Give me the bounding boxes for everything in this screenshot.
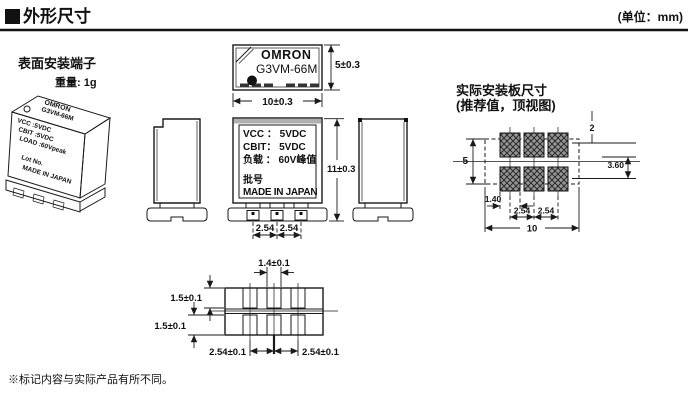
- top-view-brand: OMRON: [261, 48, 311, 62]
- dim-label-254-right: 2.54: [280, 223, 299, 234]
- dim-pin-width: 1.4±0.1: [254, 258, 294, 287]
- dim-11: 11±0.3: [324, 119, 355, 221]
- unit-label: (单位：mm): [618, 9, 683, 24]
- header: 外形尺寸 (单位：mm): [0, 6, 688, 30]
- pcb-subtitle: (推荐值，顶视图): [456, 98, 556, 113]
- mount-type-label: 表面安装端子: [17, 56, 96, 71]
- isometric-view: OMRON G3VM-66M VCC :5VDC CBIT :5VDC LOAD…: [6, 96, 110, 212]
- dim-label-15-bottom: 1.5±0.1: [154, 321, 186, 332]
- heading-square-icon: [5, 9, 20, 24]
- pcb-layout: 实际安装板尺寸 (推荐值，顶视图) 5 10: [453, 83, 640, 235]
- pcb-title: 实际安装板尺寸: [456, 83, 547, 98]
- side-view-right: [353, 118, 413, 221]
- dim-label-10: 10±0.3: [262, 97, 293, 108]
- pcb-dim-row-gap: 3.60: [572, 143, 636, 179]
- dim-label-5: 5±0.3: [335, 60, 360, 71]
- top-view: OMRON G3VM-66M 5±0.3 10±0.3: [233, 45, 360, 108]
- pcb-dim-pad-height: 2: [589, 111, 594, 143]
- page-title: 外形尺寸: [23, 6, 91, 26]
- dim-front-pitch: 2.54 2.54: [253, 222, 301, 239]
- dim-label-254-left: 2.54: [256, 223, 275, 234]
- front-spec2: CBIT： 5VDC: [243, 142, 306, 153]
- dim-label-pcb-254-left: 2.54: [514, 206, 531, 216]
- front-lot-label: 批号: [243, 173, 263, 186]
- datasheet-dimensions-page: 外形尺寸 (单位：mm) 表面安装端子 重量: 1g OMRON G3VM-66…: [0, 0, 688, 417]
- dim-label-360: 3.60: [607, 160, 624, 170]
- pin1-dot-icon: [247, 76, 257, 86]
- dim-label-254-bottom-right: 2.54±0.1: [302, 347, 340, 358]
- left-captions: 表面安装端子 重量: 1g: [17, 56, 97, 89]
- dim-pin-top: 1.5±0.1: [170, 275, 224, 321]
- dim-label-5mm: 5: [462, 156, 468, 167]
- front-spec3: 负载 ： 60V峰值: [243, 153, 316, 166]
- dim-5: 5±0.3: [324, 45, 360, 90]
- front-origin: MADE IN JAPAN: [243, 187, 317, 198]
- weight-label: 重量: 1g: [55, 75, 97, 89]
- dim-label-14: 1.4±0.1: [258, 258, 290, 269]
- pin1-marker-icon: [24, 106, 30, 112]
- side-view-left: [147, 119, 207, 221]
- top-view-model: G3VM-66M: [256, 62, 317, 76]
- footnote: ※标记内容与实际产品有所不同。: [8, 372, 173, 386]
- bottom-view: 1.4±0.1 1.5±0.1 1.5±0.1 2.54±0.1 2.54±0.…: [154, 258, 339, 358]
- dim-label-10mm: 10: [527, 224, 538, 235]
- front-spec1: VCC ： 5VDC: [243, 129, 306, 140]
- dim-label-pcb-254-right: 2.54: [538, 206, 555, 216]
- dim-label-11: 11±0.3: [327, 164, 355, 175]
- front-view: VCC ： 5VDC CBIT： 5VDC 负载 ： 60V峰值 批号 MADE…: [228, 118, 355, 239]
- dim-pin-bottom: 1.5±0.1: [154, 302, 224, 348]
- dim-10: 10±0.3: [233, 93, 322, 108]
- dim-label-254-bottom-left: 2.54±0.1: [209, 347, 247, 358]
- dim-label-2: 2: [589, 123, 594, 133]
- dim-label-15-top: 1.5±0.1: [170, 293, 202, 304]
- pcb-dim-pitch: 2.54 2.54: [510, 196, 558, 221]
- front-view-pins: [247, 211, 307, 221]
- dim-label-140: 1.40: [485, 194, 502, 204]
